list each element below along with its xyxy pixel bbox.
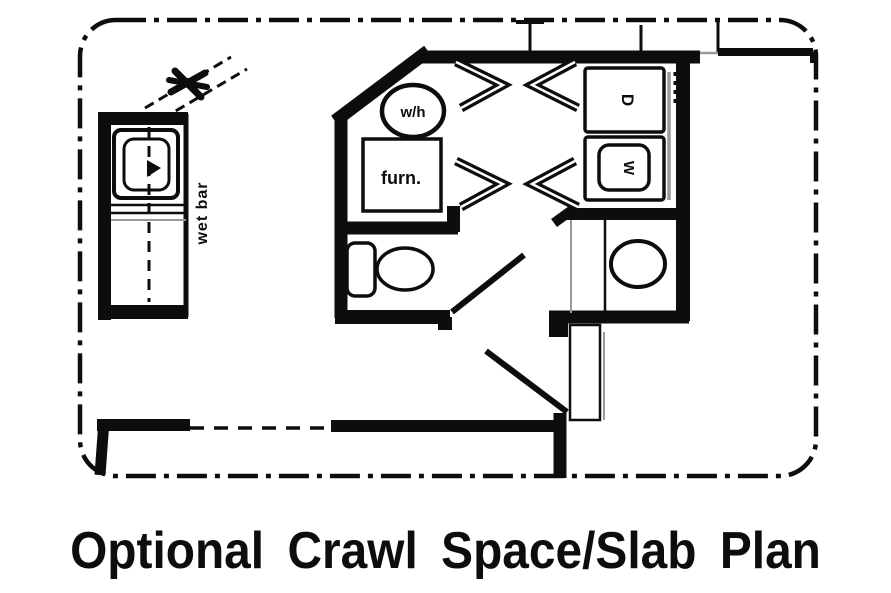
- vanity-sink: [611, 241, 665, 287]
- water-heater-label: w/h: [400, 104, 426, 121]
- toilet: [347, 243, 433, 296]
- doors: [452, 255, 604, 420]
- wall-door-jamb-stub: [447, 206, 460, 232]
- wet-bar-unit: wet bar: [98, 112, 211, 320]
- bifold-door-leaf: [532, 62, 578, 108]
- wall-end-foot: [438, 317, 452, 330]
- door-swing-hall: [486, 351, 567, 412]
- floor-plan-figure: wet bar w/h furn.: [0, 0, 891, 593]
- toilet-tank: [347, 243, 375, 296]
- leader-scribble-mark: [145, 57, 247, 119]
- wall-laundry-angled-cap: [554, 210, 572, 223]
- furnace-label: furn.: [381, 168, 421, 188]
- scribble-dot: [183, 78, 193, 88]
- lower-walls: [97, 413, 566, 478]
- bifold-door-leaf: [456, 62, 503, 108]
- wet-bar-wall-bottom: [98, 305, 188, 319]
- water-heater: w/h: [382, 85, 444, 137]
- furnace: furn.: [363, 139, 441, 211]
- floor-plan-drawing: wet bar w/h furn.: [0, 0, 891, 593]
- plan-caption: Optional Crawl Space/Slab Plan: [36, 524, 856, 579]
- bifold-door-leaf: [532, 161, 578, 207]
- toilet-bowl: [377, 248, 433, 290]
- bifold-door-leaf: [456, 161, 503, 207]
- wet-bar-label: wet bar: [194, 181, 211, 245]
- wet-bar-wall-top: [98, 112, 188, 125]
- bifold-doors: [456, 62, 578, 207]
- laundry-stack: D W: [585, 68, 675, 200]
- door-swing-bathroom: [452, 255, 524, 312]
- washer-label: W: [620, 161, 637, 176]
- door-hinge-stub: [549, 311, 568, 337]
- dryer-label: D: [618, 94, 637, 106]
- wall-bottom-left-stub: [100, 421, 104, 475]
- wet-bar-wall-left: [98, 112, 111, 320]
- vanity: [571, 220, 665, 313]
- open-door-leaf: [570, 325, 600, 420]
